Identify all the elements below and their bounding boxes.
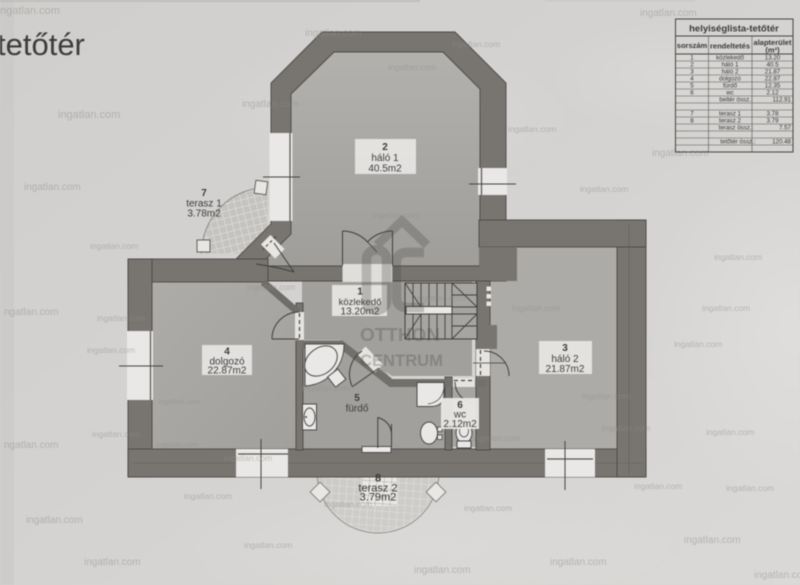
svg-text:ingatlan.com: ingatlan.com: [714, 252, 762, 262]
svg-text:ingatlan.com: ingatlan.com: [26, 515, 83, 526]
svg-text:ingatlan.com: ingatlan.com: [472, 433, 520, 443]
svg-text:háló 2: háló 2: [722, 69, 739, 76]
svg-text:2.12m2: 2.12m2: [443, 419, 477, 430]
svg-text:ingatlan.com: ingatlan.com: [414, 565, 471, 576]
svg-text:tetőtér: tetőtér: [0, 27, 85, 62]
svg-text:2: 2: [382, 142, 388, 153]
svg-text:ingatlan.com: ingatlan.com: [508, 124, 556, 134]
svg-text:22.87: 22.87: [765, 76, 781, 83]
svg-text:ingatlan.com: ingatlan.com: [244, 540, 292, 550]
svg-text:ingatlan.com: ingatlan.com: [702, 303, 750, 313]
svg-text:tetőtér össz.:: tetőtér össz.:: [720, 139, 756, 146]
svg-text:ingatlan.com: ingatlan.com: [726, 483, 774, 493]
svg-text:ingatlan.com: ingatlan.com: [684, 535, 741, 546]
svg-text:rendeltetés: rendeltetés: [710, 42, 750, 51]
svg-text:ngatlan.com: ngatlan.com: [4, 307, 58, 318]
svg-text:terasz 2: terasz 2: [719, 118, 742, 125]
svg-text:háló 1: háló 1: [722, 62, 739, 69]
svg-text:13.20: 13.20: [765, 55, 781, 62]
svg-text:3.78m2: 3.78m2: [187, 209, 221, 220]
svg-text:3.78: 3.78: [766, 111, 779, 118]
svg-text:ingatlan.com: ingatlan.com: [674, 339, 722, 349]
svg-text:ingatlan.com: ingatlan.com: [247, 282, 295, 292]
svg-text:OTTHON: OTTHON: [360, 325, 440, 345]
svg-text:5: 5: [354, 393, 360, 404]
svg-text:7: 7: [201, 188, 207, 199]
svg-text:helyiséglista-tetőtér: helyiséglista-tetőtér: [689, 24, 779, 35]
svg-text:ngatlan.com: ngatlan.com: [0, 5, 60, 17]
svg-text:ingatlan.com: ingatlan.com: [158, 397, 201, 406]
svg-text:ingatlan.com: ingatlan.com: [417, 293, 465, 303]
svg-text:ngatlan.com: ngatlan.com: [4, 440, 58, 451]
svg-text:ingatlan.com: ingatlan.com: [58, 109, 120, 121]
svg-text:ingatlan.com: ingatlan.com: [550, 557, 607, 568]
svg-text:CENTRUM: CENTRUM: [360, 351, 443, 370]
svg-text:7.57: 7.57: [779, 125, 792, 132]
svg-text:ingatlan.com: ingatlan.com: [302, 383, 350, 393]
svg-text:fürdő: fürdő: [346, 404, 369, 415]
svg-text:ingatlan.com: ingatlan.com: [24, 182, 81, 193]
svg-text:ingatlan.com: ingatlan.com: [706, 427, 754, 437]
svg-text:ingatlan.com: ingatlan.com: [372, 210, 420, 220]
svg-text:3: 3: [690, 69, 694, 76]
svg-text:40.5: 40.5: [766, 62, 779, 69]
svg-text:közlekedő: közlekedő: [716, 55, 744, 62]
svg-text:40.5m2: 40.5m2: [368, 164, 402, 175]
svg-text:22.87m2: 22.87m2: [208, 366, 247, 377]
svg-text:12.35: 12.35: [765, 83, 781, 90]
svg-text:ingatlan.com: ingatlan.com: [582, 391, 630, 401]
svg-text:(m²): (m²): [765, 46, 780, 55]
svg-text:1: 1: [690, 55, 694, 62]
svg-text:ingatlan.com: ingatlan.com: [224, 453, 272, 463]
svg-text:ingatlan.com: ingatlan.com: [156, 440, 199, 449]
svg-text:7: 7: [690, 111, 694, 118]
svg-text:ingatlan.com: ingatlan.com: [580, 184, 628, 194]
svg-text:ingatlan.com: ingatlan.com: [92, 429, 140, 439]
svg-text:sorszám: sorszám: [677, 41, 708, 50]
svg-text:dolgozó: dolgozó: [719, 76, 741, 83]
svg-text:ingatlan.com: ingatlan.com: [464, 503, 512, 513]
svg-text:5: 5: [690, 83, 694, 90]
svg-text:21.87m2: 21.87m2: [546, 364, 585, 375]
svg-text:ingatlan.com: ingatlan.com: [324, 499, 372, 509]
svg-text:8: 8: [690, 118, 694, 125]
svg-text:ingatlan.com: ingatlan.com: [512, 303, 560, 313]
svg-text:ingatlan.com: ingatlan.com: [634, 481, 682, 491]
svg-text:112.91: 112.91: [773, 97, 792, 104]
svg-text:ingatlan.com: ingatlan.com: [184, 491, 232, 501]
svg-text:3: 3: [562, 343, 568, 354]
svg-text:beltér össz.:: beltér össz.:: [719, 97, 753, 104]
svg-text:6: 6: [690, 90, 694, 97]
svg-text:21.87: 21.87: [765, 69, 781, 76]
svg-text:wc: wc: [725, 90, 734, 97]
svg-text:120.48: 120.48: [772, 139, 791, 146]
svg-text:ingatlan.com: ingatlan.com: [305, 28, 362, 39]
svg-text:ingatlan.com: ingatlan.com: [652, 148, 709, 159]
svg-text:háló 1: háló 1: [371, 153, 399, 164]
svg-text:2: 2: [690, 62, 694, 69]
svg-text:ingatlan.com: ingatlan.com: [87, 345, 135, 355]
svg-text:ingatlan.com: ingatlan.com: [754, 570, 800, 581]
svg-text:3.79: 3.79: [766, 118, 779, 125]
svg-text:ingatlan.com: ingatlan.com: [640, 8, 697, 19]
svg-text:fürdő: fürdő: [723, 83, 738, 90]
svg-text:ingatlan.com: ingatlan.com: [388, 62, 436, 72]
svg-text:terasz 1: terasz 1: [719, 111, 742, 118]
svg-text:ingatlan.com: ingatlan.com: [602, 423, 650, 433]
svg-text:4: 4: [690, 76, 694, 83]
svg-text:terasz össz.:: terasz össz.:: [719, 125, 754, 132]
svg-text:ingatlan.com: ingatlan.com: [97, 313, 145, 323]
svg-text:2.12: 2.12: [766, 90, 779, 97]
svg-text:ingatlan.com: ingatlan.com: [84, 557, 141, 568]
svg-text:ingatlan.com: ingatlan.com: [242, 99, 299, 110]
svg-text:ingatlan.com: ingatlan.com: [90, 241, 138, 251]
svg-text:ingatlan.com: ingatlan.com: [452, 39, 500, 49]
